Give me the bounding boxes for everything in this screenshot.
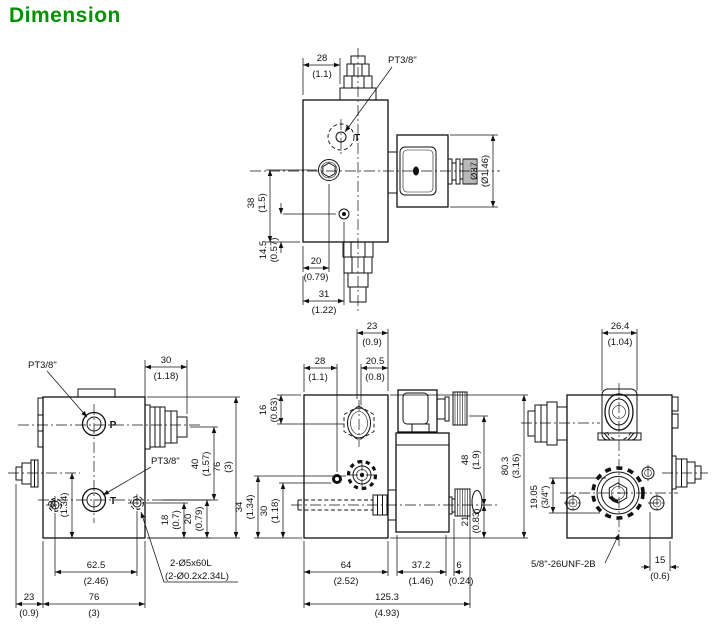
- svg-text:(1.18): (1.18): [270, 499, 281, 524]
- drawing-sheet: Dimension: [0, 0, 714, 638]
- svg-text:18: 18: [160, 515, 171, 526]
- svg-text:(1.22): (1.22): [312, 305, 337, 316]
- side-dim-80-3: 80.3 (3.16): [390, 395, 528, 538]
- svg-text:16: 16: [258, 405, 269, 416]
- set-screw: [339, 209, 349, 219]
- svg-text:21: 21: [460, 516, 471, 527]
- svg-text:(0.79): (0.79): [304, 272, 329, 283]
- svg-text:(3): (3): [88, 608, 100, 619]
- back-hole-top-right: [642, 465, 654, 481]
- side-dim-48: 48 (1.9): [460, 416, 488, 505]
- back-thread-callout: 5/8"-26UNF-2B: [531, 534, 619, 570]
- svg-text:(0.63): (0.63): [269, 398, 280, 423]
- left-edge-steps: [38, 398, 43, 447]
- svg-text:26.4: 26.4: [611, 321, 630, 332]
- svg-text:(2-Ø0.2x2.34L): (2-Ø0.2x2.34L): [165, 571, 229, 582]
- right-side-fitting: [145, 405, 187, 449]
- svg-text:19.05: 19.05: [529, 485, 540, 509]
- svg-text:(Ø1.46): (Ø1.46): [480, 155, 491, 187]
- svg-text:(0.9): (0.9): [19, 608, 39, 619]
- front-dim-34: 34 (1.34): [48, 473, 72, 538]
- hex-socket-plug: [319, 160, 340, 181]
- connector-screw-slot: [413, 167, 419, 176]
- relief-adjuster: [347, 460, 377, 490]
- top-dim-38: 38 (1.5): [246, 170, 317, 242]
- front-thread-callout-t: PT3/8": [103, 456, 180, 495]
- gland-knurl: [453, 392, 467, 425]
- side-view: 23 (0.9) 28 (1.1) 20.5 (0.8) 16: [234, 321, 528, 619]
- valve-body-side: [304, 395, 388, 538]
- top-dim-d37: Ø37 (Ø1.46): [450, 135, 498, 207]
- svg-text:48: 48: [460, 455, 471, 466]
- svg-text:PT3/8": PT3/8": [151, 456, 180, 467]
- svg-text:20.5: 20.5: [366, 356, 385, 367]
- back-top-boss: [598, 389, 641, 440]
- front-dim-30: 30 (1.18): [145, 355, 187, 414]
- svg-text:(1.34): (1.34): [59, 493, 70, 518]
- svg-text:76: 76: [89, 592, 100, 603]
- override-knob-knurl: [455, 489, 470, 516]
- svg-text:80.3: 80.3: [500, 457, 511, 476]
- back-left-fitting: [528, 402, 567, 445]
- back-dim-15: 15 (0.6): [641, 512, 679, 582]
- svg-text:(1.1): (1.1): [308, 372, 328, 383]
- svg-text:125.3: 125.3: [375, 592, 399, 603]
- svg-text:(1.34): (1.34): [245, 495, 256, 520]
- top-boss-front: [78, 389, 115, 397]
- side-dim-30: 30 (1.18): [259, 483, 331, 538]
- side-hex-port: [344, 400, 374, 447]
- svg-text:20: 20: [311, 256, 322, 267]
- svg-text:(0.6): (0.6): [650, 571, 670, 582]
- side-dim-37-2: 37.2 (1.46): [397, 535, 446, 587]
- solenoid-coil: [396, 433, 449, 532]
- front-dim-18: 18 (0.7): [146, 503, 188, 538]
- svg-text:30: 30: [161, 355, 172, 366]
- svg-text:6: 6: [456, 560, 461, 571]
- top-dim-28: 28 (1.1): [303, 53, 340, 95]
- svg-text:34: 34: [234, 502, 245, 513]
- mount-hole-right: [128, 494, 146, 512]
- svg-text:37.2: 37.2: [412, 560, 431, 571]
- svg-text:28: 28: [317, 53, 328, 64]
- svg-text:34: 34: [48, 500, 59, 511]
- back-right-fitting: [672, 456, 701, 489]
- side-dim-21: 21 (0.83): [390, 505, 528, 538]
- back-right-tabs: [672, 397, 678, 428]
- svg-text:14.5: 14.5: [258, 241, 269, 260]
- svg-text:(2.52): (2.52): [334, 576, 359, 587]
- svg-text:Ø37: Ø37: [469, 162, 480, 180]
- front-port-t-label: T: [110, 496, 116, 507]
- side-dim-34: 34 (1.34): [234, 476, 346, 538]
- side-dim-6: 6 (0.24): [437, 519, 473, 587]
- svg-text:(1.18): (1.18): [154, 371, 179, 382]
- svg-text:(0.8): (0.8): [365, 372, 385, 383]
- svg-text:23: 23: [367, 321, 378, 332]
- svg-text:(0.7): (0.7): [171, 510, 182, 530]
- svg-text:(4.93): (4.93): [375, 608, 400, 619]
- top-dim-20: 20 (0.79): [303, 184, 329, 283]
- top-view: T: [246, 48, 500, 316]
- svg-text:PT3/8": PT3/8": [388, 55, 417, 66]
- front-view: P T PT3/8" PT3/8: [8, 355, 240, 619]
- back-view: 26.4 (1.04) 19.05 (3/4") 15 (0.6) 5/8"-2…: [521, 321, 708, 582]
- svg-text:(2.46): (2.46): [84, 576, 109, 587]
- svg-text:(0.57): (0.57): [269, 238, 280, 263]
- svg-text:(3.16): (3.16): [511, 454, 522, 479]
- left-side-fitting: [16, 460, 38, 487]
- front-dim-62-5: 62.5 (2.46): [55, 511, 137, 587]
- front-dim-23: 23 (0.9): [16, 484, 43, 619]
- svg-text:(1.04): (1.04): [608, 337, 633, 348]
- din-connector: [398, 390, 437, 432]
- svg-text:28: 28: [315, 356, 326, 367]
- svg-text:(0.83): (0.83): [471, 509, 482, 534]
- svg-text:15: 15: [655, 555, 666, 566]
- side-dim-20-5: 20.5 (0.8): [361, 356, 388, 405]
- svg-text:(1.1): (1.1): [312, 69, 332, 80]
- svg-text:30: 30: [259, 506, 270, 517]
- svg-text:31: 31: [319, 289, 330, 300]
- dimension-drawing: T: [0, 0, 714, 638]
- svg-text:5/8"-26UNF-2B: 5/8"-26UNF-2B: [531, 559, 596, 570]
- svg-text:76: 76: [212, 462, 223, 473]
- svg-text:(3): (3): [223, 461, 234, 473]
- svg-text:(1.46): (1.46): [409, 576, 434, 587]
- svg-text:(0.9): (0.9): [362, 337, 382, 348]
- svg-text:20: 20: [183, 514, 194, 525]
- svg-text:38: 38: [246, 198, 257, 209]
- svg-text:23: 23: [24, 592, 35, 603]
- back-dim-26-4: 26.4 (1.04): [602, 321, 637, 391]
- top-dim-31: 31 (1.22): [303, 222, 344, 316]
- side-dim-16: 16 (0.63): [258, 395, 344, 424]
- side-dim-28: 28 (1.1): [304, 356, 337, 472]
- top-thread-callout: PT3/8": [345, 55, 417, 132]
- svg-text:(1.5): (1.5): [257, 193, 268, 213]
- back-hole-bottom-right: [648, 494, 666, 512]
- svg-text:(1.9): (1.9): [471, 450, 482, 470]
- front-port-p-label: P: [110, 420, 117, 431]
- svg-text:40: 40: [190, 459, 201, 470]
- svg-text:2-Ø5x60L: 2-Ø5x60L: [170, 558, 212, 569]
- svg-text:(1.57): (1.57): [201, 452, 212, 477]
- svg-text:64: 64: [341, 560, 352, 571]
- svg-text:62.5: 62.5: [87, 560, 106, 571]
- svg-text:(3/4"): (3/4"): [540, 486, 551, 509]
- svg-text:(0.79): (0.79): [194, 507, 205, 532]
- top-port-t-label: T: [354, 133, 360, 144]
- svg-text:PT3/8": PT3/8": [28, 360, 57, 371]
- side-small-hole: [332, 474, 342, 484]
